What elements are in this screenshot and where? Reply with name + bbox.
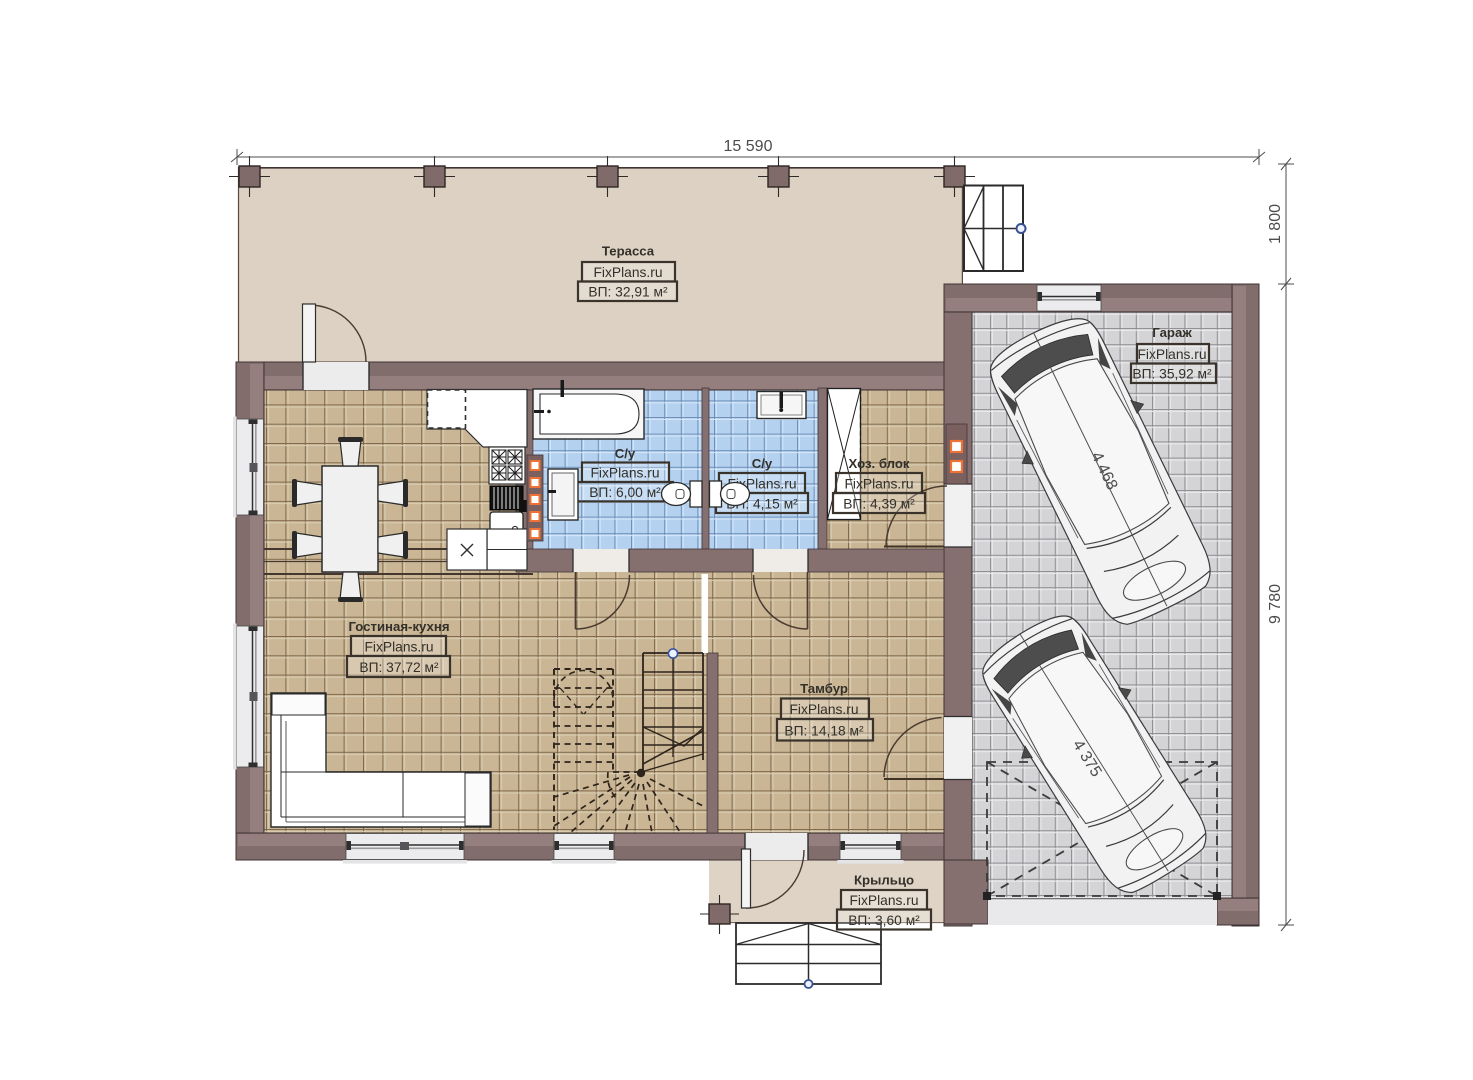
svg-text:ВП: 32,91 м²: ВП: 32,91 м² xyxy=(588,285,668,300)
svg-text:ВП: 3,60 м²: ВП: 3,60 м² xyxy=(848,913,920,928)
svg-text:9 780: 9 780 xyxy=(1267,584,1284,624)
svg-text:FixPlans.ru: FixPlans.ru xyxy=(844,477,913,492)
svg-text:Тамбур: Тамбур xyxy=(800,681,848,696)
svg-text:Терасса: Терасса xyxy=(602,244,655,259)
svg-text:15 590: 15 590 xyxy=(724,138,773,155)
svg-text:С/у: С/у xyxy=(752,456,773,471)
svg-text:Крыльцо: Крыльцо xyxy=(854,873,914,888)
svg-text:FixPlans.ru: FixPlans.ru xyxy=(364,640,433,655)
svg-text:Гараж: Гараж xyxy=(1152,325,1192,340)
svg-text:Хоз. блок: Хоз. блок xyxy=(848,456,909,471)
svg-text:FixPlans.ru: FixPlans.ru xyxy=(789,702,858,717)
svg-text:Гостиная-кухня: Гостиная-кухня xyxy=(348,619,449,634)
svg-text:ВП: 14,18 м²: ВП: 14,18 м² xyxy=(784,724,864,739)
svg-text:1 800: 1 800 xyxy=(1267,204,1284,244)
svg-text:ВП: 6,00 м²: ВП: 6,00 м² xyxy=(589,485,661,500)
svg-text:С/у: С/у xyxy=(615,446,636,461)
svg-text:FixPlans.ru: FixPlans.ru xyxy=(593,265,662,280)
svg-text:ВП: 4,39 м²: ВП: 4,39 м² xyxy=(843,497,915,512)
svg-text:FixPlans.ru: FixPlans.ru xyxy=(1137,347,1206,362)
svg-text:ВП: 35,92 м²: ВП: 35,92 м² xyxy=(1132,367,1212,382)
svg-text:ВП: 37,72 м²: ВП: 37,72 м² xyxy=(359,660,439,675)
svg-text:FixPlans.ru: FixPlans.ru xyxy=(590,466,659,481)
svg-text:FixPlans.ru: FixPlans.ru xyxy=(849,893,918,908)
